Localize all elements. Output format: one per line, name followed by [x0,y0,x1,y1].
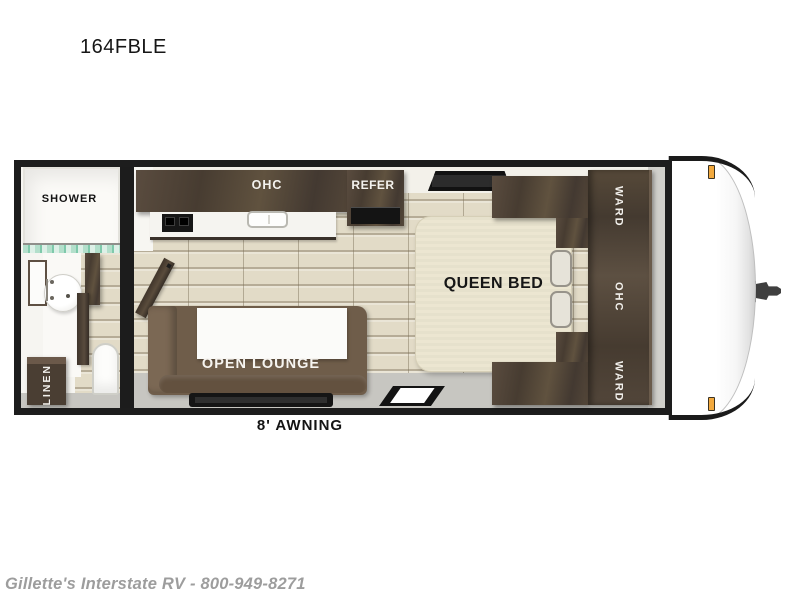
pillow-icon [550,291,572,328]
ward-top-label: WARD [588,179,649,235]
bathroom-door [77,293,89,365]
faucet-icon [46,279,54,301]
interior-wall [120,167,134,408]
marker-light-top-icon [708,165,715,179]
floorplan-body: SHOWER LINEN OHC REFER [14,160,672,415]
bed-ohc-label: OHC [588,275,649,319]
kitchen-sink-icon [247,211,288,228]
shower-label: SHOWER [21,193,118,205]
hitch-coupler-icon [753,282,781,300]
floorplan-model-title: 164FBLE [80,36,167,59]
refrigerator-front [351,207,400,224]
ward-bottom-label: WARD [588,359,649,405]
dealer-watermark: Gillette's Interstate RV - 800-949-8271 [5,575,306,594]
shower-glass-door-icon [23,243,120,253]
linen-label: LINEN [41,364,53,406]
marker-light-bottom-icon [708,397,715,411]
trailer-front-cap [668,156,756,420]
queen-bed [415,216,572,372]
shower-stall [23,167,120,253]
bed-nightstand-bottom [556,332,588,362]
queen-bed-label: QUEEN BED [415,275,572,293]
bed-nightstand-top [556,218,588,248]
kitchen-counter [150,212,336,240]
sink-drain-icon [66,294,70,298]
toilet-icon [92,343,119,395]
pillow-icon [550,250,572,287]
open-lounge-label: OPEN LOUNGE [161,356,361,372]
cooktop-icon [162,214,193,232]
awning-label: 8' AWNING [215,417,385,434]
refer-label: REFER [343,178,403,192]
kitchen-ohc-label: OHC [237,178,297,192]
entry-mat-icon [189,393,333,407]
lounge-table [197,308,347,359]
sofa-seat-front [159,375,367,393]
bed-cabinet-top [492,176,588,218]
linen-cabinet: LINEN [27,357,66,405]
floorplan-page: 164FBLE SHOWER LINEN [0,0,800,600]
bed-cabinet-bottom [492,362,588,405]
